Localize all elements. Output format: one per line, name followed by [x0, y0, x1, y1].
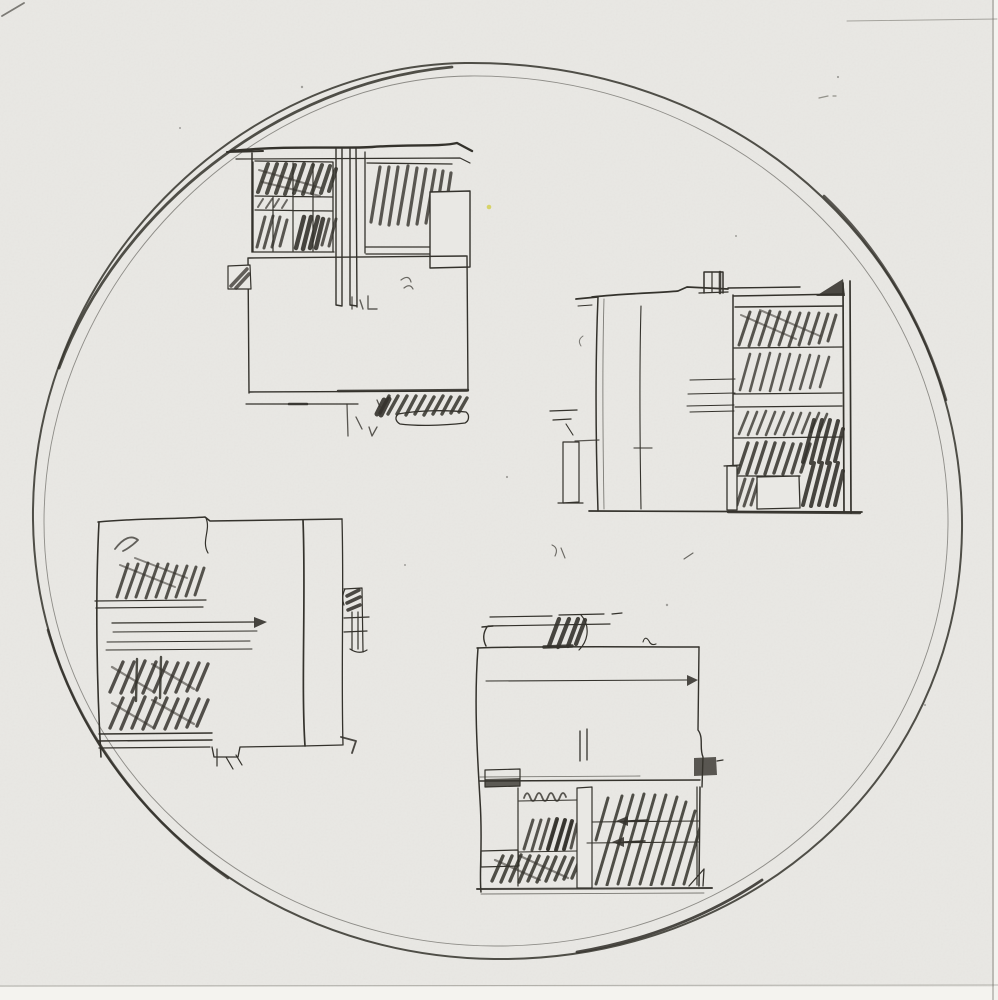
sketch-scan: Freehand pencil sketch: four modernist b…	[0, 0, 998, 1000]
pencil-drawing	[0, 0, 998, 1000]
yellow-speck	[487, 205, 492, 210]
